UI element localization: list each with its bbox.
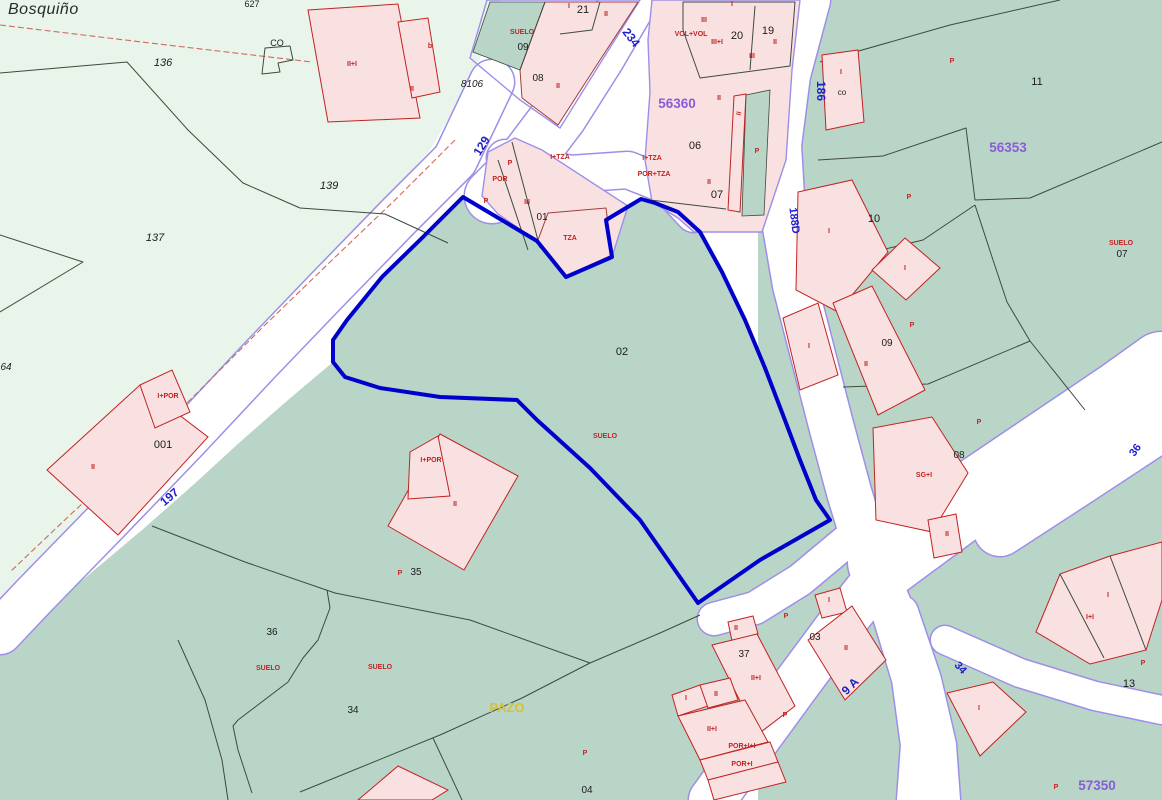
parcel-number-label: 20 (731, 30, 743, 42)
building-use-label: I+TZA (550, 154, 570, 161)
building-use-label: SUELO (510, 29, 535, 36)
building-use-label: POR+TZA (638, 171, 671, 178)
building-use-label: P (950, 58, 955, 65)
parcel-number-label: 06 (689, 140, 701, 152)
building-use-label: II (410, 86, 414, 93)
parcel-number-label: 07 (711, 189, 723, 201)
zone-code-label: 57350 (1078, 778, 1116, 793)
building-use-label: II (714, 691, 718, 698)
building-use-label: P (784, 613, 789, 620)
building-use-label: II (734, 625, 738, 632)
building-use-label: II (556, 83, 560, 90)
parcel-number-label: 08 (953, 450, 965, 461)
building-use-label: II (844, 645, 848, 652)
building-use-label: II (707, 179, 711, 186)
parcel-number-label: 001 (154, 439, 172, 451)
building-use-label: I (840, 69, 842, 76)
building-use-label: II+I (751, 675, 761, 682)
building-use-label: II (773, 39, 777, 46)
building-use-label: II (864, 361, 868, 368)
zone-code-label: 56353 (989, 140, 1027, 155)
parcel-number-label: 11 (1031, 76, 1042, 88)
cadastral-map-canvas[interactable]: 627CO13681061391376400102090821201906070… (0, 0, 1162, 800)
parcel-number-label: 37 (738, 649, 750, 660)
road-name-label: 186 (814, 81, 828, 101)
building-use-label: I (904, 265, 906, 272)
building-use-label: P (508, 160, 513, 167)
parcel-number-label: CO (270, 38, 284, 48)
building-use-label: P (1054, 784, 1059, 791)
building-use-label: I (978, 705, 980, 712)
parcel-number-label: 627 (244, 0, 259, 9)
building-use-label: II+I (347, 61, 357, 68)
building-use-label: SUELO (1109, 240, 1134, 247)
parcel-number-label: 01 (536, 212, 548, 223)
parcel-number-label: 34 (347, 705, 359, 716)
building-use-label: III (749, 53, 755, 60)
building-use-label: I+I (1086, 614, 1094, 621)
building-use-label: II (945, 531, 949, 538)
building-use-label: II (604, 11, 608, 18)
building-use-label: P (398, 570, 403, 577)
building-use-label: II (453, 501, 457, 508)
building-use-label: P (907, 194, 912, 201)
parcel-number-label: 10 (868, 213, 880, 225)
building-use-label: P (583, 750, 588, 757)
building-use-label: VOL+VOL (675, 31, 709, 38)
building-use-label: P (755, 148, 760, 155)
building-use-label: I (808, 343, 810, 350)
parcel-number-label: 03 (809, 632, 821, 643)
building-use-label: I+POR (420, 457, 441, 464)
parcel-number-label: 09 (881, 338, 893, 349)
building-use-label: II (91, 464, 95, 471)
building-use-label: P (977, 419, 982, 426)
building-use-label: II (717, 95, 721, 102)
landmark-label: PAZO (489, 700, 524, 715)
building-use-label: P (910, 322, 915, 329)
parcel-number-label: 137 (146, 232, 165, 244)
building-use-label: III (524, 199, 530, 206)
parcel-number-label: 136 (154, 57, 173, 69)
parcel-number-label: 139 (320, 180, 338, 192)
building-use-label: I+POR (157, 393, 178, 400)
parcel-number-label: 64 (0, 362, 12, 373)
building-use-label: P (1141, 660, 1146, 667)
building-use-label: TZA (563, 235, 577, 242)
building-use-label: I (1107, 592, 1109, 599)
zone-code-label: 56360 (658, 96, 696, 111)
parcel-number-label: 8106 (461, 79, 484, 90)
building-use-label: III (701, 17, 707, 24)
building-use-label: POR+I (731, 761, 752, 768)
parcel-number-label: 04 (581, 785, 593, 796)
building-use-label: SUELO (368, 664, 393, 671)
parcel-number-label: 08 (532, 73, 544, 84)
building-use-label: I (828, 597, 830, 604)
building-use-label: SG+I (916, 472, 932, 479)
building-use-label: P (783, 712, 788, 719)
building-use-label: b (428, 43, 432, 50)
parcel-number-label: 36 (266, 627, 278, 638)
building-use-label: III+I (711, 39, 723, 46)
building-use-label: POR+I+I (728, 743, 755, 750)
parcel-number-label: 35 (410, 567, 422, 578)
parcel-number-label: co (838, 88, 847, 97)
parcel-number-label: 09 (517, 42, 529, 53)
building-use-label: SUELO (256, 665, 281, 672)
building-use-label: I (685, 695, 687, 702)
building-use-label: P (484, 198, 489, 205)
building-use-label: SUELO (593, 433, 618, 440)
cadastral-map-viewport[interactable]: 627CO13681061391376400102090821201906070… (0, 0, 1162, 800)
parcel-number-label: 02 (616, 346, 628, 358)
building-use-label: II+I (707, 726, 717, 733)
parcel-number-label: 19 (762, 25, 774, 37)
building-use-label: I (568, 3, 570, 10)
place-name-label: Bosquiño (8, 1, 79, 19)
building-use-label: I (828, 228, 830, 235)
building-use-label: I (731, 1, 733, 8)
building-use-label: POR (492, 176, 507, 183)
parcel-number-label: 13 (1123, 678, 1135, 690)
building-use-label: I+TZA (642, 155, 662, 162)
parcel-number-label: 21 (577, 4, 589, 16)
parcel-number-label: 07 (1116, 249, 1128, 260)
